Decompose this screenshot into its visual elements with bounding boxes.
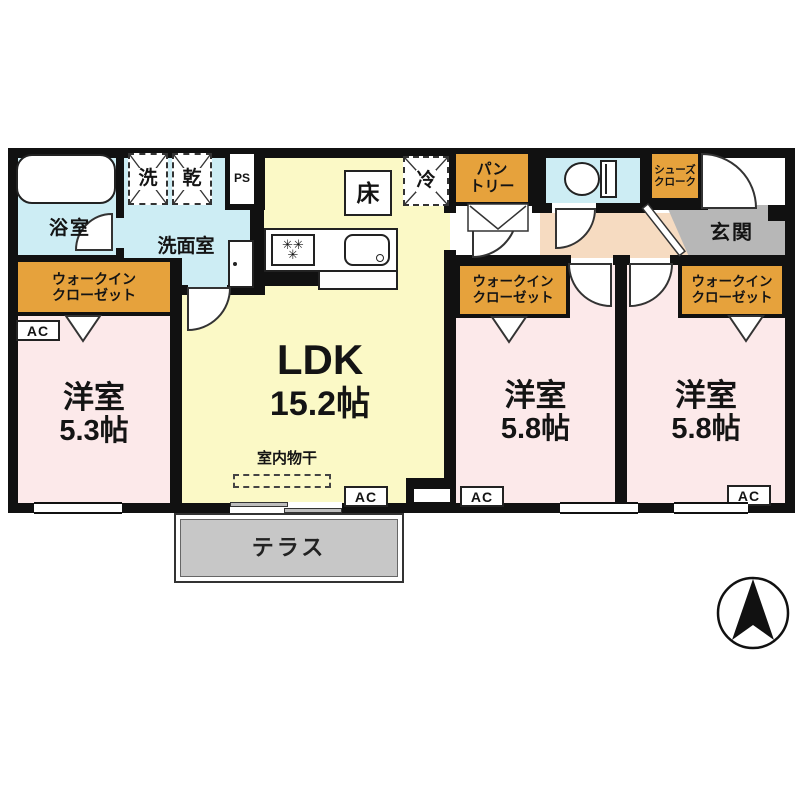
room-vestibule [450, 213, 545, 258]
wall-bath-divider-upper [116, 148, 124, 218]
bathtub [16, 154, 116, 204]
floor-hatch-label: 床 [357, 180, 380, 206]
dryer-space: 乾 [172, 153, 212, 205]
walkin-closet-right-label: ウォークイン クローゼット [692, 274, 773, 305]
bedroom-middle-size: 5.8帖 [501, 413, 570, 446]
bedroom-right-label-box: 洋室 5.8帖 [629, 368, 783, 456]
pipe-space: PS [230, 154, 254, 204]
bedroom-right-name: 洋室 [675, 378, 737, 414]
floor-hatch: 床 [344, 170, 392, 216]
kitchen-counter-front [318, 270, 398, 290]
walkin-closet-right: ウォークイン クローゼット [678, 262, 786, 318]
ldk-label-box: LDK 15.2帖 [200, 332, 440, 428]
washroom-label: 洗面室 [157, 236, 214, 258]
room-hallway [540, 213, 690, 258]
sliding-door-panel-left [230, 502, 288, 507]
toilet-tank-line [605, 164, 607, 194]
ac-bedroom-middle: AC [460, 486, 504, 507]
bathroom-label: 浴室 [49, 218, 91, 240]
terrace-deck: テラス [180, 519, 398, 577]
stove: ✳✳ ✳ [271, 234, 315, 266]
bedroom-middle-name: 洋室 [505, 378, 567, 414]
bedroom-middle-label-box: 洋室 5.8帖 [458, 368, 613, 456]
pipe-space-label: PS [234, 172, 250, 186]
ldk-step-slot [414, 489, 450, 502]
kitchen-sink [344, 234, 390, 266]
north-arrow-icon [714, 574, 792, 652]
floor-plan: ウォークイン クローゼット ウォークイン クローゼット ウォークイン クローゼッ… [0, 0, 800, 800]
walkin-closet-left-label: ウォークイン クローゼット [52, 271, 136, 303]
door-swing-entrance [702, 154, 756, 208]
entrance-label-box: 玄関 [682, 219, 782, 247]
ac-label: AC [471, 489, 493, 505]
ac-label: AC [27, 323, 49, 339]
ac-bedroom-left: AC [16, 320, 60, 341]
walkin-closet-left: ウォークイン クローゼット [14, 258, 174, 316]
wall-kitchen-partition [252, 272, 320, 286]
bedroom-left-name: 洋室 [63, 380, 125, 416]
stove-burner-bottom: ✳ [288, 250, 299, 260]
indoor-drying-rail [233, 474, 331, 488]
refrigerator-space: 冷 [403, 156, 449, 206]
bathroom-label-box: 浴室 [22, 214, 118, 244]
bedroom-left-size: 5.3帖 [59, 415, 128, 448]
refrigerator-label: 冷 [416, 170, 435, 192]
toilet-bowl [564, 162, 600, 196]
wall-toilet-bottom-b [596, 203, 646, 213]
wall-bedroom-divider [615, 255, 627, 513]
sink-drain [376, 254, 384, 262]
bedroom-left-label-box: 洋室 5.3帖 [18, 372, 170, 456]
washer-space: 洗 [128, 153, 168, 205]
indoor-drying-label: 室内物干 [257, 450, 317, 467]
washroom-label-box: 洗面室 [124, 232, 248, 262]
ldk-size-label: 15.2帖 [270, 385, 370, 424]
indoor-drying-label-box: 室内物干 [228, 448, 346, 470]
toilet-tank [600, 160, 617, 198]
window-bedroom-right [674, 502, 748, 514]
vanity-handle [233, 262, 237, 266]
ac-ldk: AC [344, 486, 388, 507]
dryer-label: 乾 [182, 168, 201, 190]
shoe-closet-label: シューズ クローク [654, 164, 696, 188]
washer-label: 洗 [138, 168, 157, 190]
window-bedroom-left [34, 502, 122, 514]
wall-right [785, 148, 795, 513]
window-bedroom-middle [560, 502, 638, 514]
walkin-closet-middle: ウォークイン クローゼット [456, 262, 570, 318]
entrance-label: 玄関 [710, 222, 754, 245]
wall-ldk-bedroom1 [444, 250, 456, 505]
walkin-closet-middle-label: ウォークイン クローゼット [473, 274, 554, 305]
pantry: パン トリー [452, 150, 532, 206]
terrace-label: テラス [252, 535, 327, 560]
pantry-label: パン トリー [469, 161, 514, 196]
bedroom-right-size: 5.8帖 [671, 413, 740, 446]
shoe-closet: シューズ クローク [648, 150, 702, 202]
terrace: テラス [174, 513, 404, 583]
ac-label: AC [355, 489, 377, 505]
ldk-name-label: LDK [277, 336, 363, 384]
wall-toilet-bottom-a [534, 203, 552, 213]
